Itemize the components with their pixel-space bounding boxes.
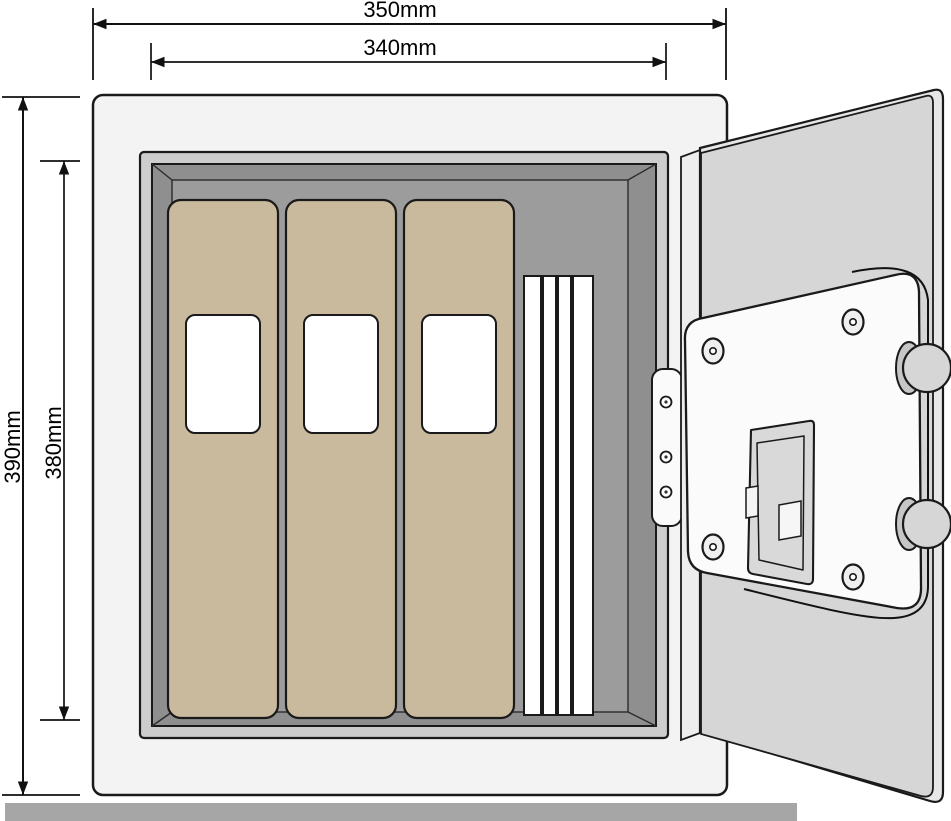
door-screw-center	[710, 544, 716, 550]
safe-dimension-diagram: 350mm 340mm 390mm 380mm	[0, 0, 951, 821]
binders	[168, 200, 514, 718]
file-folder	[524, 276, 541, 715]
door-screw-center	[850, 319, 856, 325]
locking-bolt-front	[903, 500, 951, 548]
dimension-label-inner-height: 380mm	[41, 406, 66, 479]
hinge-plate	[652, 369, 682, 526]
floor	[5, 803, 797, 821]
binder	[286, 200, 396, 718]
dimension-inner-height: 380mm	[40, 161, 80, 720]
door-screw-center	[850, 574, 856, 580]
dimension-inner-width: 340mm	[151, 35, 666, 80]
hinge-pin-center	[664, 455, 667, 458]
hinge-pin-center	[664, 400, 667, 403]
safe-door	[681, 90, 951, 802]
battery-cover-group	[746, 421, 814, 584]
dimension-label-inner-width: 340mm	[363, 35, 436, 60]
battery-window	[779, 501, 801, 540]
binder-label-window	[186, 315, 260, 433]
hinge-pin-center	[664, 490, 667, 493]
binder-label-window	[422, 315, 496, 433]
binder	[168, 200, 278, 718]
dimension-label-outer-width: 350mm	[363, 0, 436, 22]
dimension-label-outer-height: 390mm	[0, 410, 25, 483]
binder	[404, 200, 514, 718]
binder-label-window	[304, 315, 378, 433]
door-screw-center	[710, 348, 716, 354]
file-folders	[524, 276, 593, 715]
locking-bolt-front	[903, 344, 951, 392]
diagram-canvas: 350mm 340mm 390mm 380mm	[0, 0, 951, 821]
door-hinge	[652, 369, 682, 526]
file-folder	[543, 276, 556, 715]
battery-latch	[746, 486, 758, 518]
file-folder	[573, 276, 593, 715]
dimension-outer-height: 390mm	[0, 97, 80, 795]
file-folder	[558, 276, 571, 715]
